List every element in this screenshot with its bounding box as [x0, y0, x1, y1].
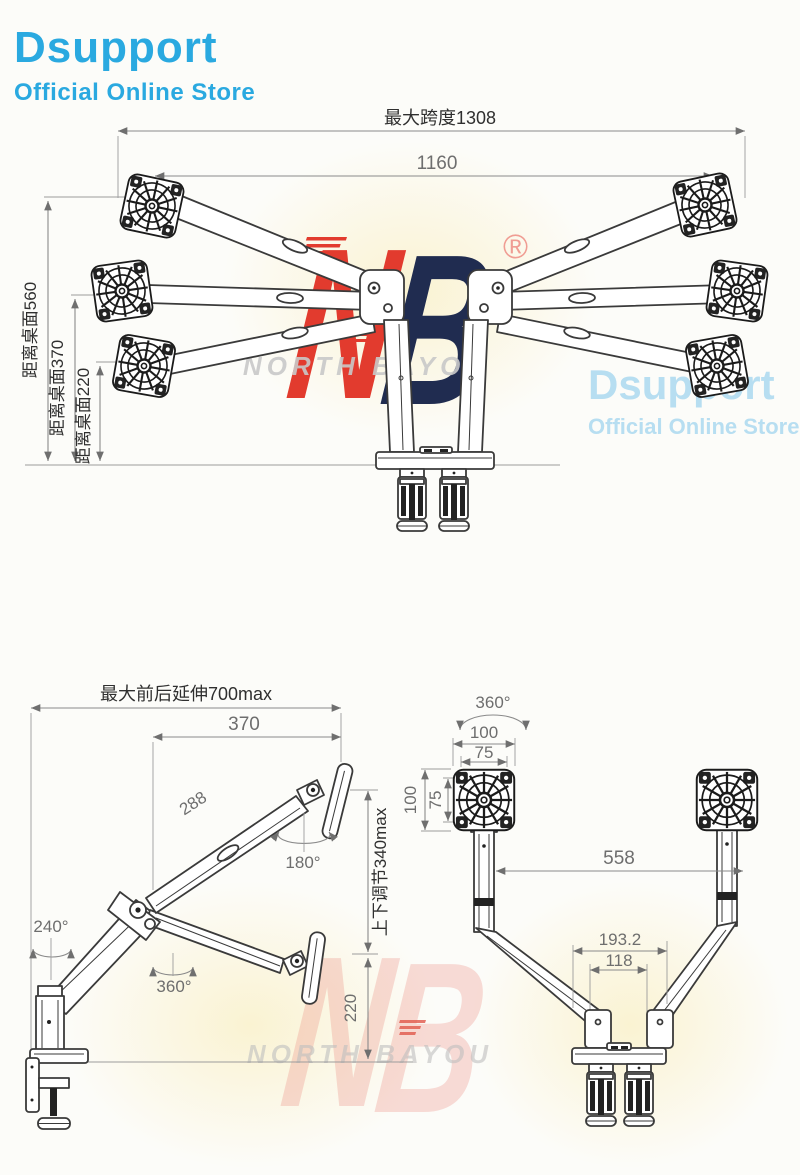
- dim-193-label: 193.2: [599, 930, 642, 949]
- product-diagram-page: N B ® NORTH BAYOU N B NORTH BAYOU Dsuppo…: [0, 0, 800, 1175]
- dim-220-label: 220: [341, 994, 360, 1022]
- dim-desk-220-label: 距离桌面220: [74, 368, 93, 464]
- vesa-plate: [90, 259, 153, 322]
- base-assembly: [572, 1010, 673, 1064]
- dim-100v-label: 100: [401, 786, 420, 814]
- dim-desk-560-label: 距离桌面560: [21, 282, 40, 378]
- vesa-head-raised: [297, 762, 354, 839]
- dim-75v-label: 75: [426, 791, 445, 810]
- desk-clamp: [397, 469, 427, 531]
- side-view-diagram: 最大前后延伸700max 370 288: [0, 670, 420, 1175]
- vesa-plate: [454, 770, 514, 830]
- dim-max-span-label: 最大跨度1308: [384, 108, 496, 128]
- vesa-plate: [685, 334, 750, 399]
- rot-180-label: 180°: [285, 853, 320, 872]
- vesa-plate: [705, 259, 768, 322]
- dim-lift-label: 上下调节340max: [371, 807, 390, 936]
- desk-clamp: [624, 1064, 654, 1126]
- front-view-diagram: 最大跨度1308 1160 距离桌面560 距离桌面370 距离桌面220: [0, 100, 800, 550]
- rot-240-label: 240°: [33, 917, 68, 936]
- dim-370-label: 370: [228, 714, 260, 735]
- store-logo-title: Dsupport: [14, 26, 255, 70]
- vesa-head-lowered: [283, 931, 326, 1004]
- dim-288-label: 288: [176, 788, 210, 819]
- vesa-plate: [112, 334, 177, 399]
- base-and-clamp: [26, 986, 88, 1129]
- vesa-plate: [119, 173, 185, 239]
- rot-360-label: 360°: [156, 977, 191, 996]
- dim-75h-label: 75: [475, 743, 494, 762]
- center-column: [360, 270, 512, 469]
- rear-view-diagram: 360° 100 75 100 75: [395, 670, 800, 1175]
- dim-558-label: 558: [603, 848, 635, 869]
- store-logo: Dsupport Official Online Store: [14, 26, 255, 107]
- vesa-plate: [672, 172, 738, 238]
- arm-column-right: [714, 823, 740, 926]
- rot-360-label: 360°: [475, 693, 510, 712]
- monitor-arm-left: [148, 192, 375, 374]
- vesa-plate: [697, 770, 757, 830]
- dim-118-label: 118: [605, 951, 632, 970]
- dim-reach-max-label: 最大前后延伸700max: [100, 684, 272, 704]
- desk-clamp: [586, 1064, 616, 1126]
- arm-column-left: [471, 825, 497, 932]
- forearm-lowered: [146, 910, 284, 973]
- desk-clamp: [439, 469, 469, 531]
- dim-inner-span-label: 1160: [417, 153, 458, 174]
- dim-desk-370-label: 距离桌面370: [48, 340, 67, 436]
- dim-100h-label: 100: [470, 723, 498, 742]
